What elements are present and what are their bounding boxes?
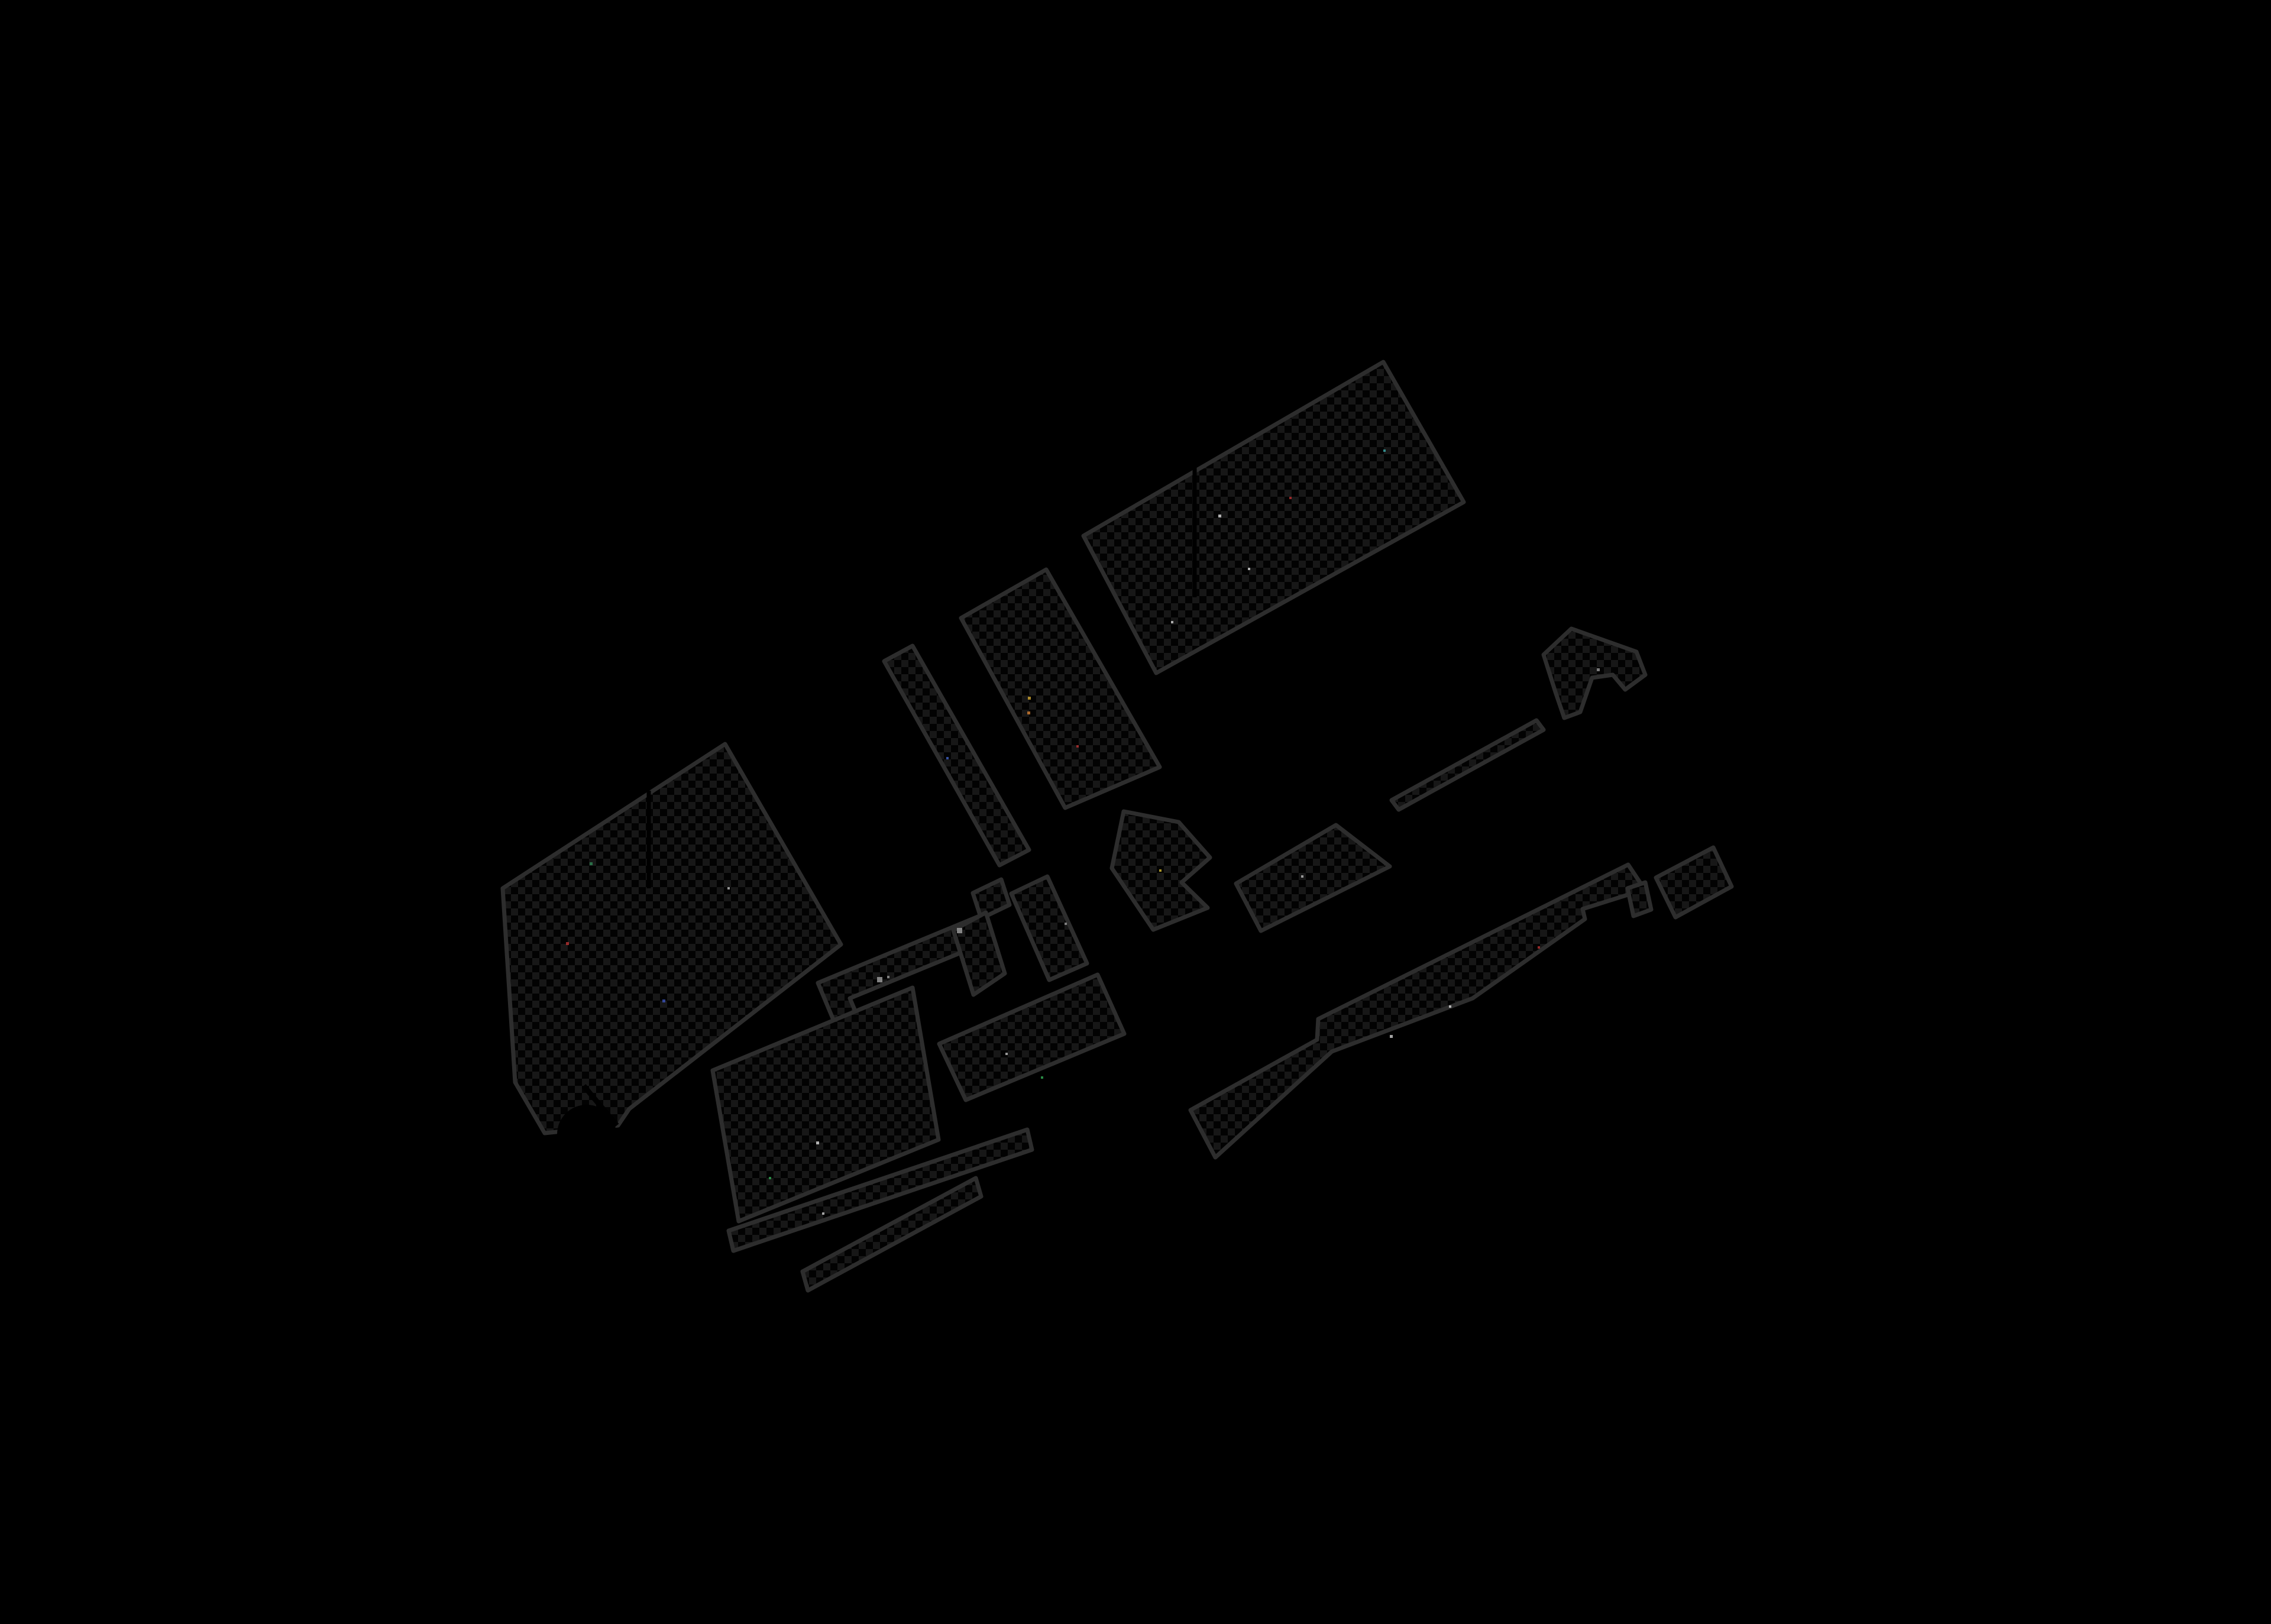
noise-dot [1005,1053,1008,1055]
noise-dot [1538,946,1540,949]
noise-dot [877,977,882,982]
noise-dot [957,928,962,933]
shape-tiny-rect-small[interactable] [1628,882,1651,916]
noise-dot [887,976,889,978]
noise-dot [1065,923,1067,925]
noise-dot [727,887,730,889]
noise-dot [946,757,949,759]
noise-dot [1301,875,1303,878]
noise-dot [822,1212,824,1215]
noise-dot [1289,497,1292,499]
noise-dot [1027,711,1030,714]
noise-dot [1597,668,1600,671]
noise-dot [1028,697,1031,700]
noise-dot [662,999,665,1002]
noise-dot [769,1177,771,1179]
noise-dot [1390,1035,1393,1038]
noise-dot [816,1141,819,1144]
noise-dot [1383,449,1386,452]
noise-dot [1041,1076,1043,1079]
noise-dot [1171,621,1173,623]
noise-dot [1159,869,1162,872]
noise-dot [1248,568,1250,570]
noise-dot [1076,745,1079,748]
noise-dot [590,862,593,865]
noise-dot [1449,1005,1451,1008]
noise-dot [1218,515,1221,517]
parts-layout-scene [0,0,2271,1624]
canvas-viewport[interactable] [0,0,2271,1624]
noise-dot [566,942,569,945]
